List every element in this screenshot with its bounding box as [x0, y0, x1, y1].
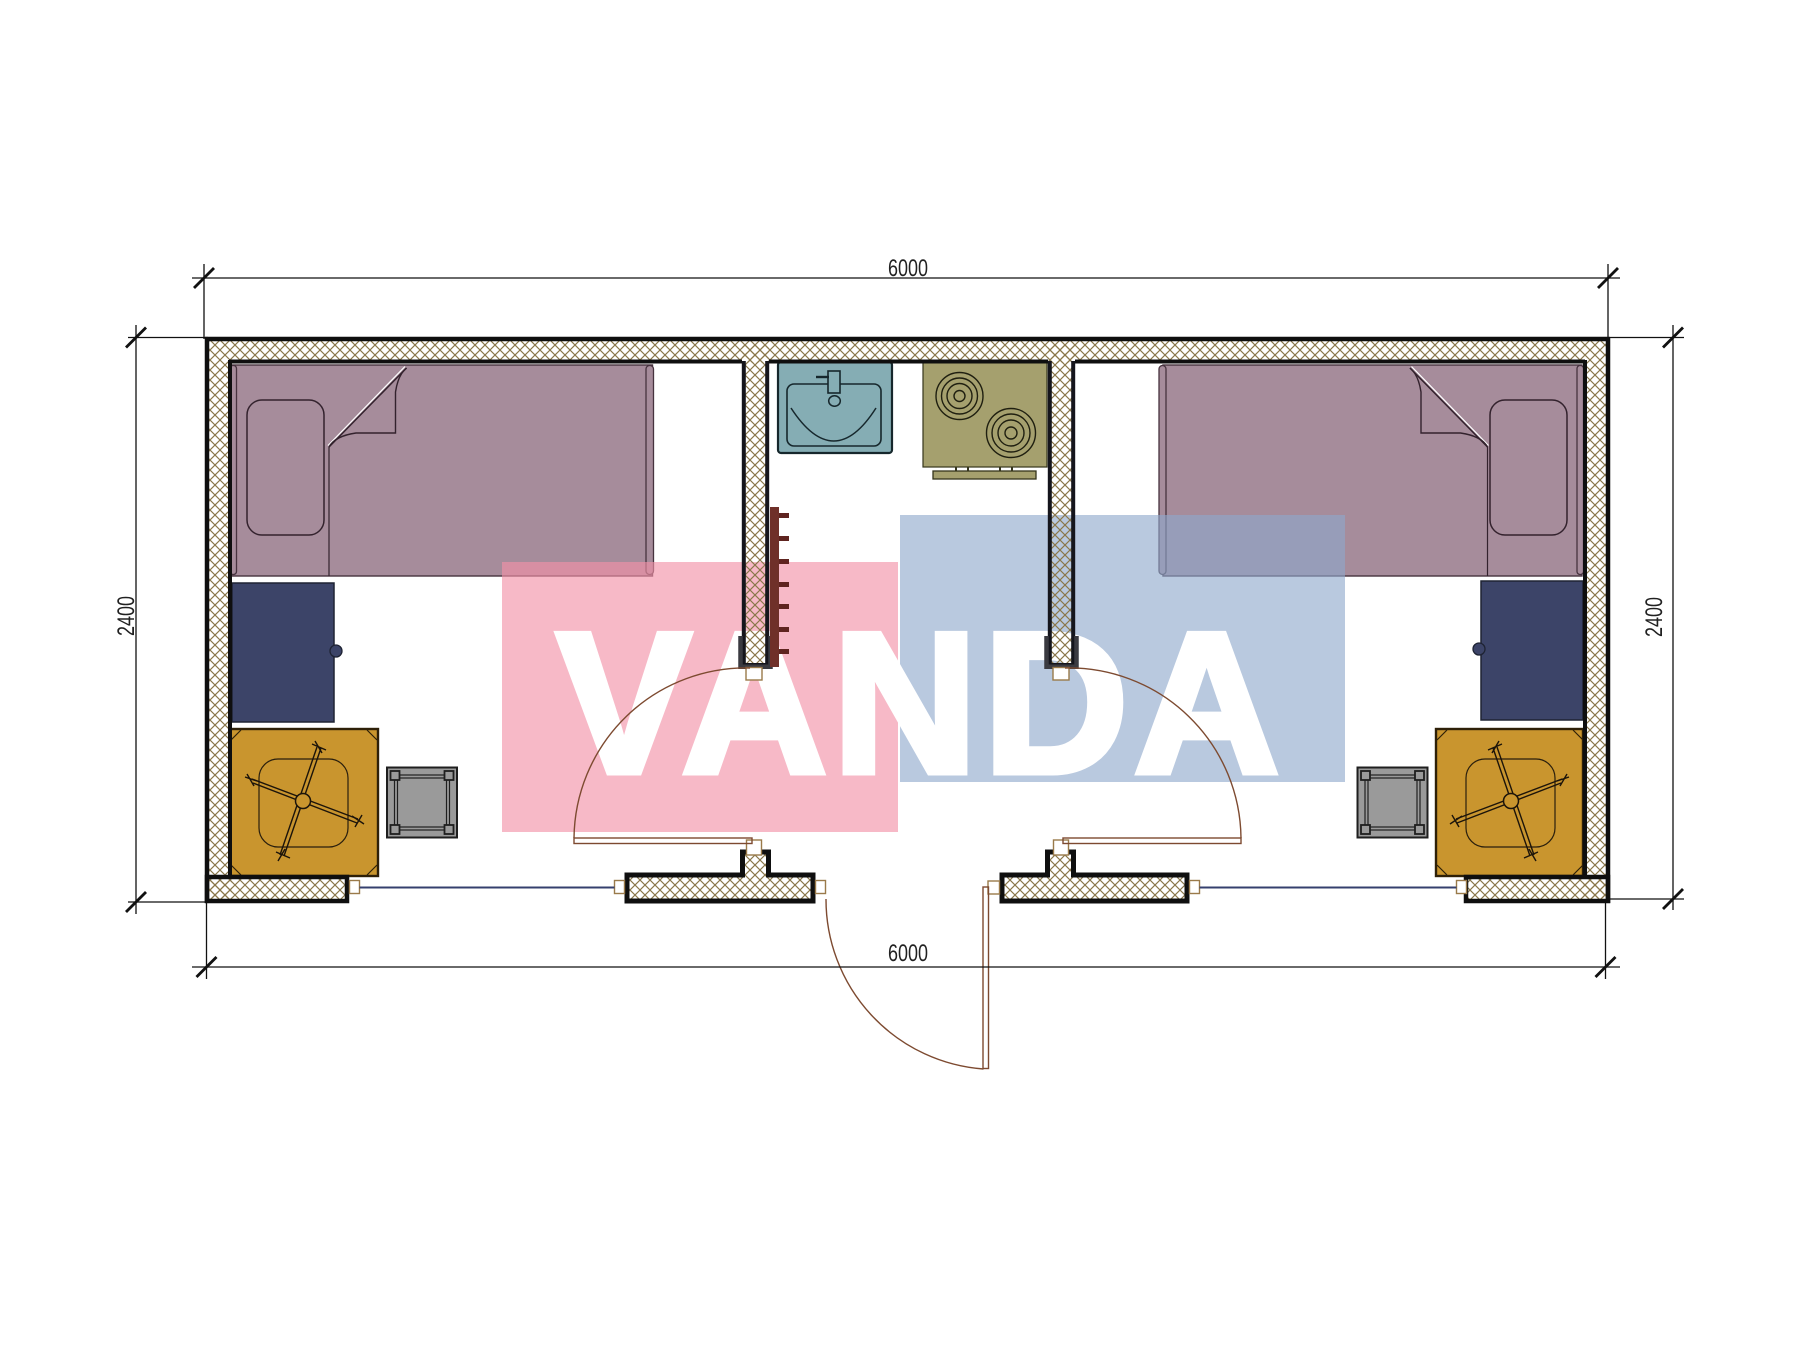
svg-text:2400: 2400 [1641, 597, 1668, 637]
svg-text:6000: 6000 [888, 255, 928, 282]
svg-text:VANDA: VANDA [557, 592, 1285, 815]
svg-text:6000: 6000 [888, 940, 928, 967]
svg-text:2400: 2400 [113, 596, 140, 636]
